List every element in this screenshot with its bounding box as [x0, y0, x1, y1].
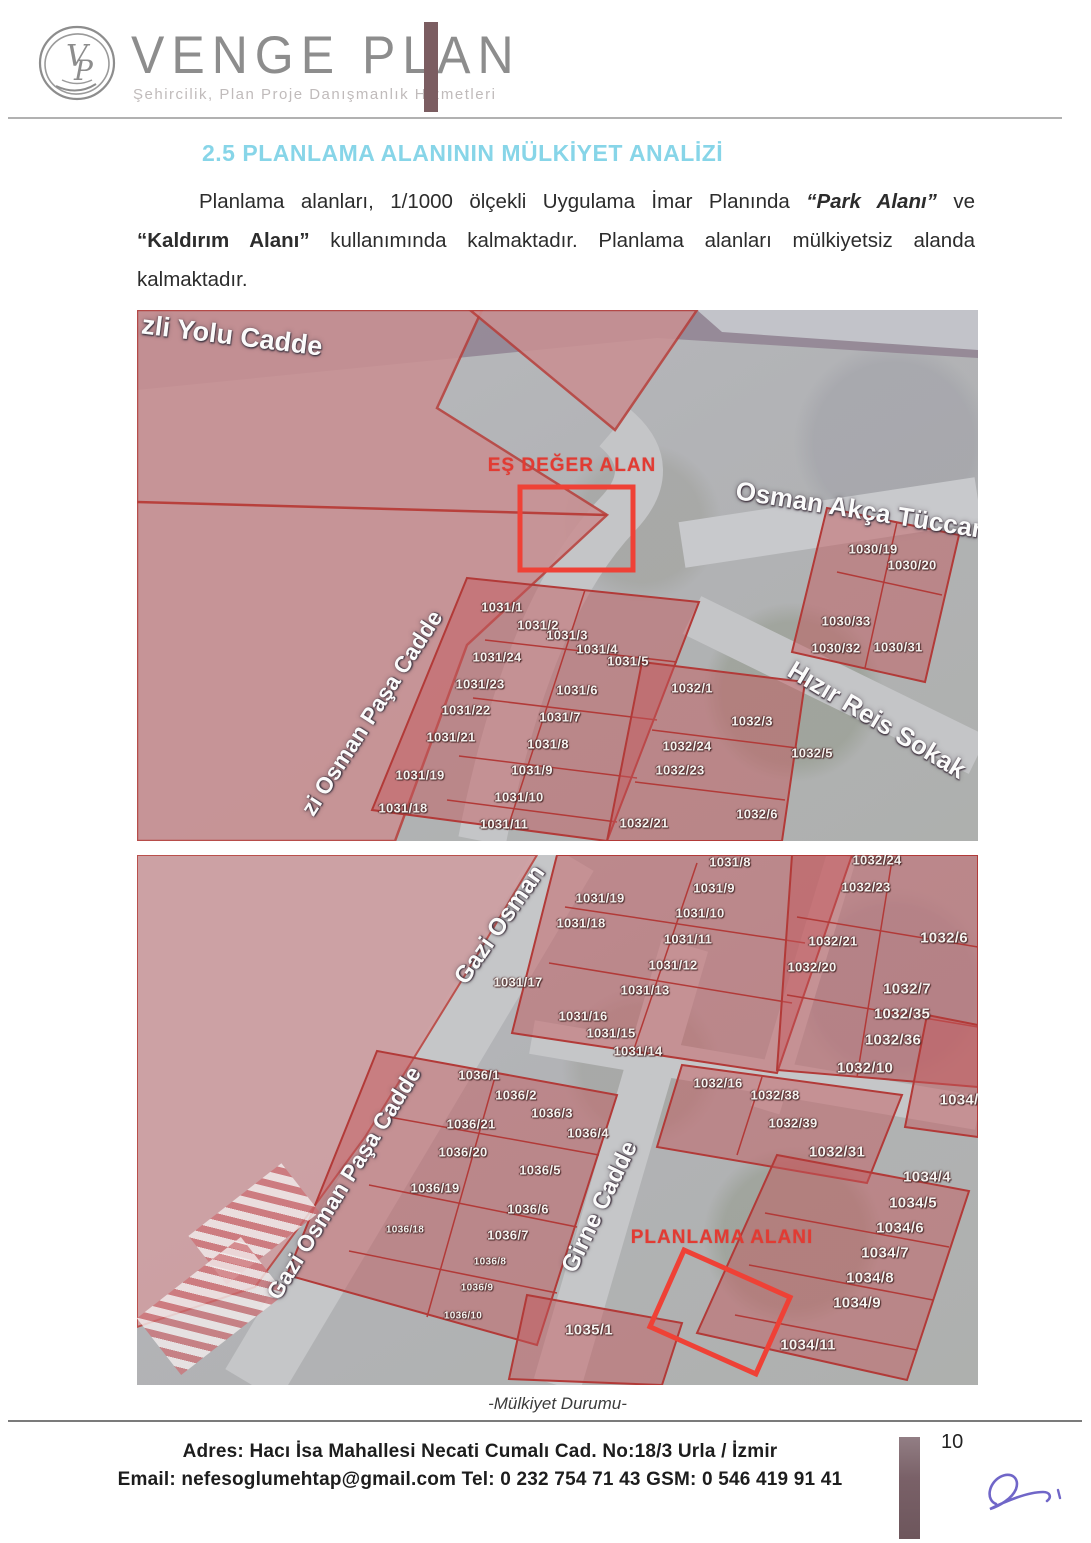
- parcel-label: 1031/15: [586, 1026, 635, 1041]
- footer-accent-bar: [899, 1437, 920, 1539]
- parcel-label: 1031/17: [493, 975, 542, 990]
- parcel-label: 1031/9: [693, 881, 735, 896]
- street-label: zi Osman Paşa Cadde: [296, 605, 449, 820]
- brand-name: VENGE PLAN: [131, 25, 521, 86]
- parcel-label: 1031/9: [511, 763, 553, 778]
- parcel-label: 1034/5: [889, 1195, 937, 1212]
- parcel-label: 1031/5: [607, 654, 649, 669]
- parcel-label: 1036/8: [474, 1257, 506, 1268]
- map-caption: -Mülkiyet Durumu-: [137, 1394, 978, 1414]
- header-divider: [8, 117, 1062, 119]
- parcel-label: 1031/16: [558, 1009, 607, 1024]
- parcel-label: 1036/20: [438, 1145, 487, 1160]
- parcel-label: 1035/1: [565, 1322, 613, 1339]
- parcel-label: 1036/18: [386, 1225, 424, 1236]
- parcel-label: 1032/16: [693, 1076, 742, 1091]
- parcel-label: 1032/24: [662, 739, 711, 754]
- parcel-label: 1032/35: [874, 1006, 930, 1023]
- paragraph-segment: “Kaldırım Alanı”: [137, 229, 310, 252]
- parcel-label: 1034/4: [903, 1169, 951, 1186]
- parcel-label: 1032/6: [920, 930, 968, 947]
- parcel-label: 1036/19: [410, 1181, 459, 1196]
- svg-text:P: P: [73, 54, 94, 87]
- parcel-label: 1032/21: [808, 934, 857, 949]
- street-label: Girne Cadde: [556, 1137, 644, 1278]
- parcel-label: 1032/31: [809, 1144, 865, 1161]
- parcel-label: 1031/6: [556, 683, 598, 698]
- parcel-label: 1030/20: [887, 558, 936, 573]
- parcel-label: 1036/1: [458, 1068, 500, 1083]
- footer-address: Adres: Hacı İsa Mahallesi Necati Cumalı …: [40, 1438, 920, 1466]
- parcel-label: 1032/20: [787, 960, 836, 975]
- parcel-label: 1036/9: [461, 1283, 493, 1294]
- parcel-label: 1032/5: [791, 746, 833, 761]
- parcel-label: 1031/22: [441, 703, 490, 718]
- parcel-label: 1036/2: [495, 1088, 537, 1103]
- parcel-label: 1032/36: [865, 1032, 921, 1049]
- paragraph-segment: ve: [937, 190, 975, 213]
- parcel-label: 1032/23: [655, 763, 704, 778]
- parcel-label: 1031/18: [378, 801, 427, 816]
- parcel-label: 1031/14: [613, 1044, 662, 1059]
- parcel-label: 1036/5: [519, 1163, 561, 1178]
- parcel-label: 1036/21: [446, 1117, 495, 1132]
- es-deger-alan-label: EŞ DEĞER ALAN: [488, 455, 657, 477]
- parcel-label: 1031/13: [620, 983, 669, 998]
- parcel-label: 1030/33: [821, 614, 870, 629]
- parcel-label: 1031/19: [575, 891, 624, 906]
- parcel-label: 1031/10: [675, 906, 724, 921]
- footer: Adres: Hacı İsa Mahallesi Necati Cumalı …: [40, 1438, 920, 1494]
- parcel-label: 1031/7: [539, 710, 581, 725]
- map2-labels: Gazi OsmanGazi Osman Paşa CaddeGirne Cad…: [137, 855, 978, 1385]
- paragraph-segment: “Park Alanı”: [806, 190, 937, 213]
- parcel-label: 1032/23: [841, 880, 890, 895]
- footer-contact: Email: nefesoglumehtap@gmail.com Tel: 0 …: [40, 1466, 920, 1494]
- parcel-label: 1032/1: [671, 681, 713, 696]
- parcel-label: 1032/10: [837, 1060, 893, 1077]
- parcel-label: 1036/10: [444, 1311, 482, 1322]
- parcel-label: 1036/3: [531, 1106, 573, 1121]
- header-accent-bar: [424, 22, 438, 112]
- parcel-label: 1031/19: [395, 768, 444, 783]
- parcel-label: 1031/12: [648, 958, 697, 973]
- parcel-label: 1032/6: [736, 807, 778, 822]
- parcel-label: 1031/1: [481, 600, 523, 615]
- body-paragraph: Planlama alanları, 1/1000 ölçekli Uygula…: [137, 182, 975, 299]
- parcel-label: 1030/31: [873, 640, 922, 655]
- parcel-label: 1034/8: [846, 1270, 894, 1287]
- logo-circle-icon: V P: [36, 22, 118, 104]
- parcel-label: 1030/19: [848, 542, 897, 557]
- parcel-label: 1034/11: [780, 1337, 836, 1354]
- parcel-label: 1032/21: [619, 816, 668, 831]
- parcel-label: 1031/21: [426, 730, 475, 745]
- parcel-label: 1034/6: [876, 1220, 924, 1237]
- map-mulkiyet-alt: Gazi OsmanGazi Osman Paşa CaddeGirne Cad…: [137, 855, 978, 1385]
- parcel-label: 1034/9: [833, 1295, 881, 1312]
- paragraph-segment: Planlama alanları, 1/1000 ölçekli Uygula…: [199, 190, 806, 213]
- parcel-label: 1031/11: [664, 932, 712, 947]
- page-number: 10: [941, 1431, 963, 1454]
- parcel-label: 1032/39: [768, 1116, 817, 1131]
- parcel-label: 1036/4: [567, 1126, 609, 1141]
- parcel-label: 1032/7: [883, 981, 931, 998]
- parcel-label: 1032/24: [852, 855, 901, 868]
- map-mulkiyet-ust: zli Yolu CaddeOsman Akça TüccarHızır Rei…: [137, 310, 978, 841]
- parcel-label: 1032/3: [731, 714, 773, 729]
- street-label: Osman Akça Tüccar: [734, 475, 978, 545]
- parcel-label: 1031/8: [527, 737, 569, 752]
- brand-tagline: Şehircilik, Plan Proje Danışmanlık Hizme…: [133, 86, 496, 103]
- parcel-label: 1030/32: [811, 641, 860, 656]
- parcel-label: 1031/23: [455, 677, 504, 692]
- street-label: Gazi Osman: [449, 860, 552, 990]
- parcel-label: 1036/7: [487, 1228, 529, 1243]
- parcel-label: 1031/10: [494, 790, 543, 805]
- logo: V P VENGE PLAN Şehircilik, Plan Proje Da…: [36, 20, 456, 115]
- document-page: V P VENGE PLAN Şehircilik, Plan Proje Da…: [0, 0, 1091, 1543]
- parcel-label: 1031/8: [709, 855, 751, 870]
- street-label: zli Yolu Cadde: [140, 310, 324, 362]
- parcel-label: 1031/18: [556, 916, 605, 931]
- parcel-label: 1036/6: [507, 1202, 549, 1217]
- parcel-label: 1034/7: [861, 1245, 909, 1262]
- section-heading: 2.5 PLANLAMA ALANININ MÜLKİYET ANALİZİ: [202, 140, 723, 167]
- parcel-label: 1031/3: [546, 628, 588, 643]
- signature-icon: [980, 1468, 1090, 1533]
- planlama-alani-label: PLANLAMA ALANI: [631, 1227, 814, 1249]
- street-label: Gazi Osman Paşa Cadde: [261, 1061, 427, 1304]
- parcel-label: 1031/24: [472, 650, 521, 665]
- parcel-label: 1034/: [939, 1092, 978, 1109]
- parcel-label: 1031/11: [480, 817, 528, 832]
- footer-divider: [8, 1420, 1082, 1422]
- map1-labels: zli Yolu CaddeOsman Akça TüccarHızır Rei…: [137, 310, 978, 841]
- street-label: Hızır Reis Sokak: [782, 655, 971, 786]
- parcel-label: 1032/38: [750, 1088, 799, 1103]
